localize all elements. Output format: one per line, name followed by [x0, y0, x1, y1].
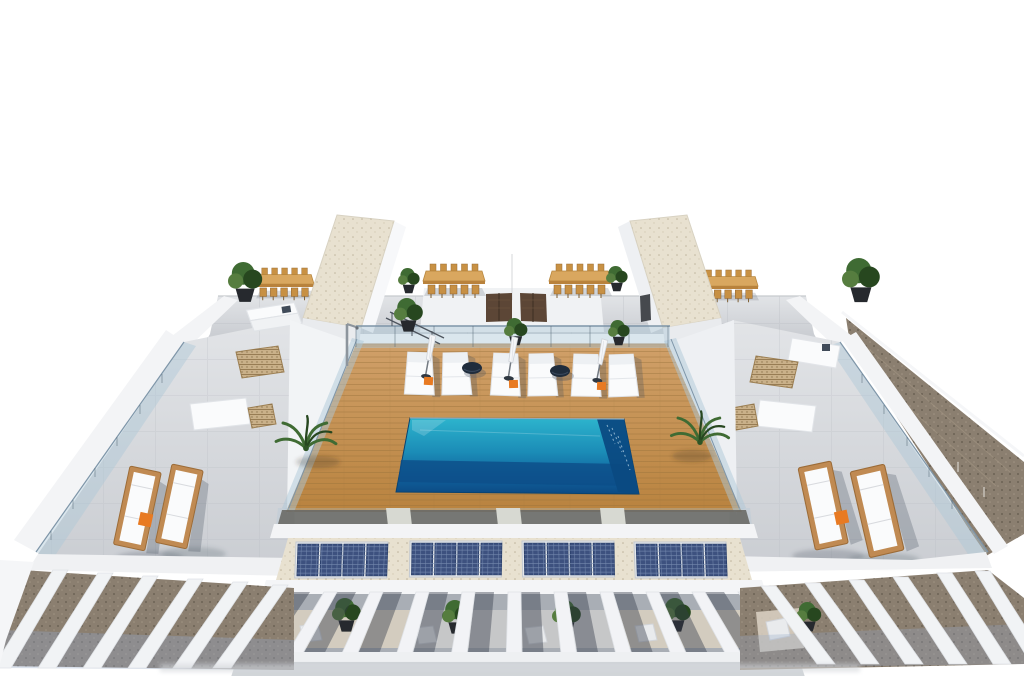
solar-group-3	[522, 541, 615, 577]
solar-group-4	[634, 542, 727, 578]
glass-film	[276, 508, 752, 526]
dining-set-left-outer	[255, 268, 315, 300]
daybed	[756, 400, 816, 432]
solar-group-2	[409, 541, 502, 577]
rooftop-render-stage	[0, 0, 1024, 683]
orange-towel	[509, 380, 518, 388]
swimming-pool	[396, 418, 639, 494]
pool-deep-band	[398, 460, 634, 486]
solar-roof-strip	[276, 538, 752, 580]
dining-set-right-inner	[549, 264, 612, 298]
daybed	[190, 398, 250, 430]
deck-fascia	[276, 508, 752, 526]
right-pergola-wing	[740, 570, 1024, 670]
ground-shadow	[160, 664, 860, 672]
solar-group-1	[295, 542, 388, 578]
tower-door	[640, 294, 651, 322]
orange-towel	[597, 382, 606, 390]
orange-towel	[834, 510, 849, 525]
pool-lounger-6	[607, 354, 645, 399]
orange-towel	[138, 512, 153, 527]
orange-towel	[424, 377, 433, 385]
dining-set-left-inner	[423, 264, 486, 298]
rooftop-render	[0, 0, 1024, 683]
facade-beam	[270, 524, 758, 538]
ground-white	[0, 676, 1024, 683]
